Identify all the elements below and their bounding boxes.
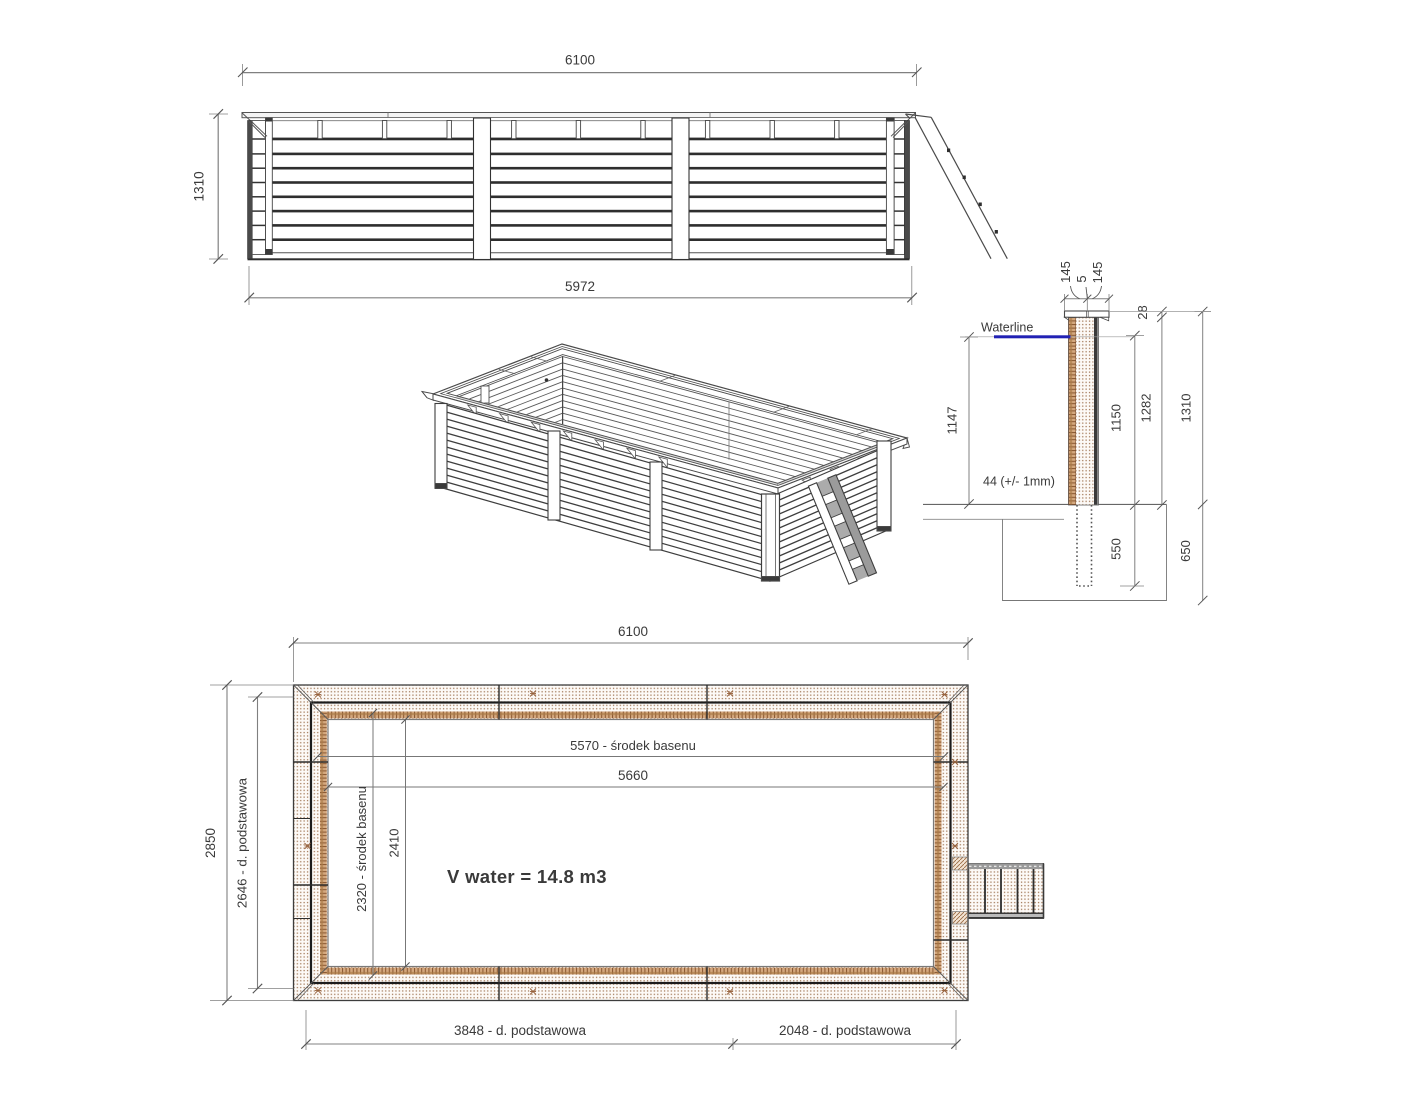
svg-text:1147: 1147 bbox=[945, 407, 960, 435]
svg-text:145: 145 bbox=[1058, 261, 1073, 283]
svg-text:44 (+/- 1mm): 44 (+/- 1mm) bbox=[983, 475, 1055, 489]
svg-text:1150: 1150 bbox=[1109, 404, 1124, 432]
svg-text:1282: 1282 bbox=[1139, 394, 1154, 423]
svg-text:5: 5 bbox=[1074, 275, 1089, 282]
svg-text:6100: 6100 bbox=[565, 53, 595, 68]
svg-text:1310: 1310 bbox=[1179, 394, 1194, 423]
svg-text:5570 - środek basenu: 5570 - środek basenu bbox=[570, 738, 696, 753]
svg-text:2320 - środek basenu: 2320 - środek basenu bbox=[354, 786, 369, 912]
svg-text:2850: 2850 bbox=[203, 828, 218, 858]
svg-text:650: 650 bbox=[1178, 540, 1193, 562]
svg-text:1310: 1310 bbox=[192, 171, 207, 201]
svg-text:V water = 14.8 m3: V water = 14.8 m3 bbox=[447, 866, 607, 887]
svg-text:3848 - d. podstawowa: 3848 - d. podstawowa bbox=[454, 1023, 587, 1038]
svg-text:6100: 6100 bbox=[618, 624, 648, 639]
svg-text:28: 28 bbox=[1135, 305, 1150, 319]
svg-text:Waterline: Waterline bbox=[981, 321, 1033, 335]
svg-text:2646 - d. podstawowa: 2646 - d. podstawowa bbox=[235, 777, 250, 908]
svg-text:2048 - d. podstawowa: 2048 - d. podstawowa bbox=[779, 1023, 912, 1038]
svg-text:5660: 5660 bbox=[618, 768, 648, 783]
svg-text:550: 550 bbox=[1109, 538, 1124, 560]
svg-text:5972: 5972 bbox=[565, 279, 595, 294]
svg-text:145: 145 bbox=[1090, 262, 1105, 284]
svg-text:2410: 2410 bbox=[387, 829, 402, 858]
